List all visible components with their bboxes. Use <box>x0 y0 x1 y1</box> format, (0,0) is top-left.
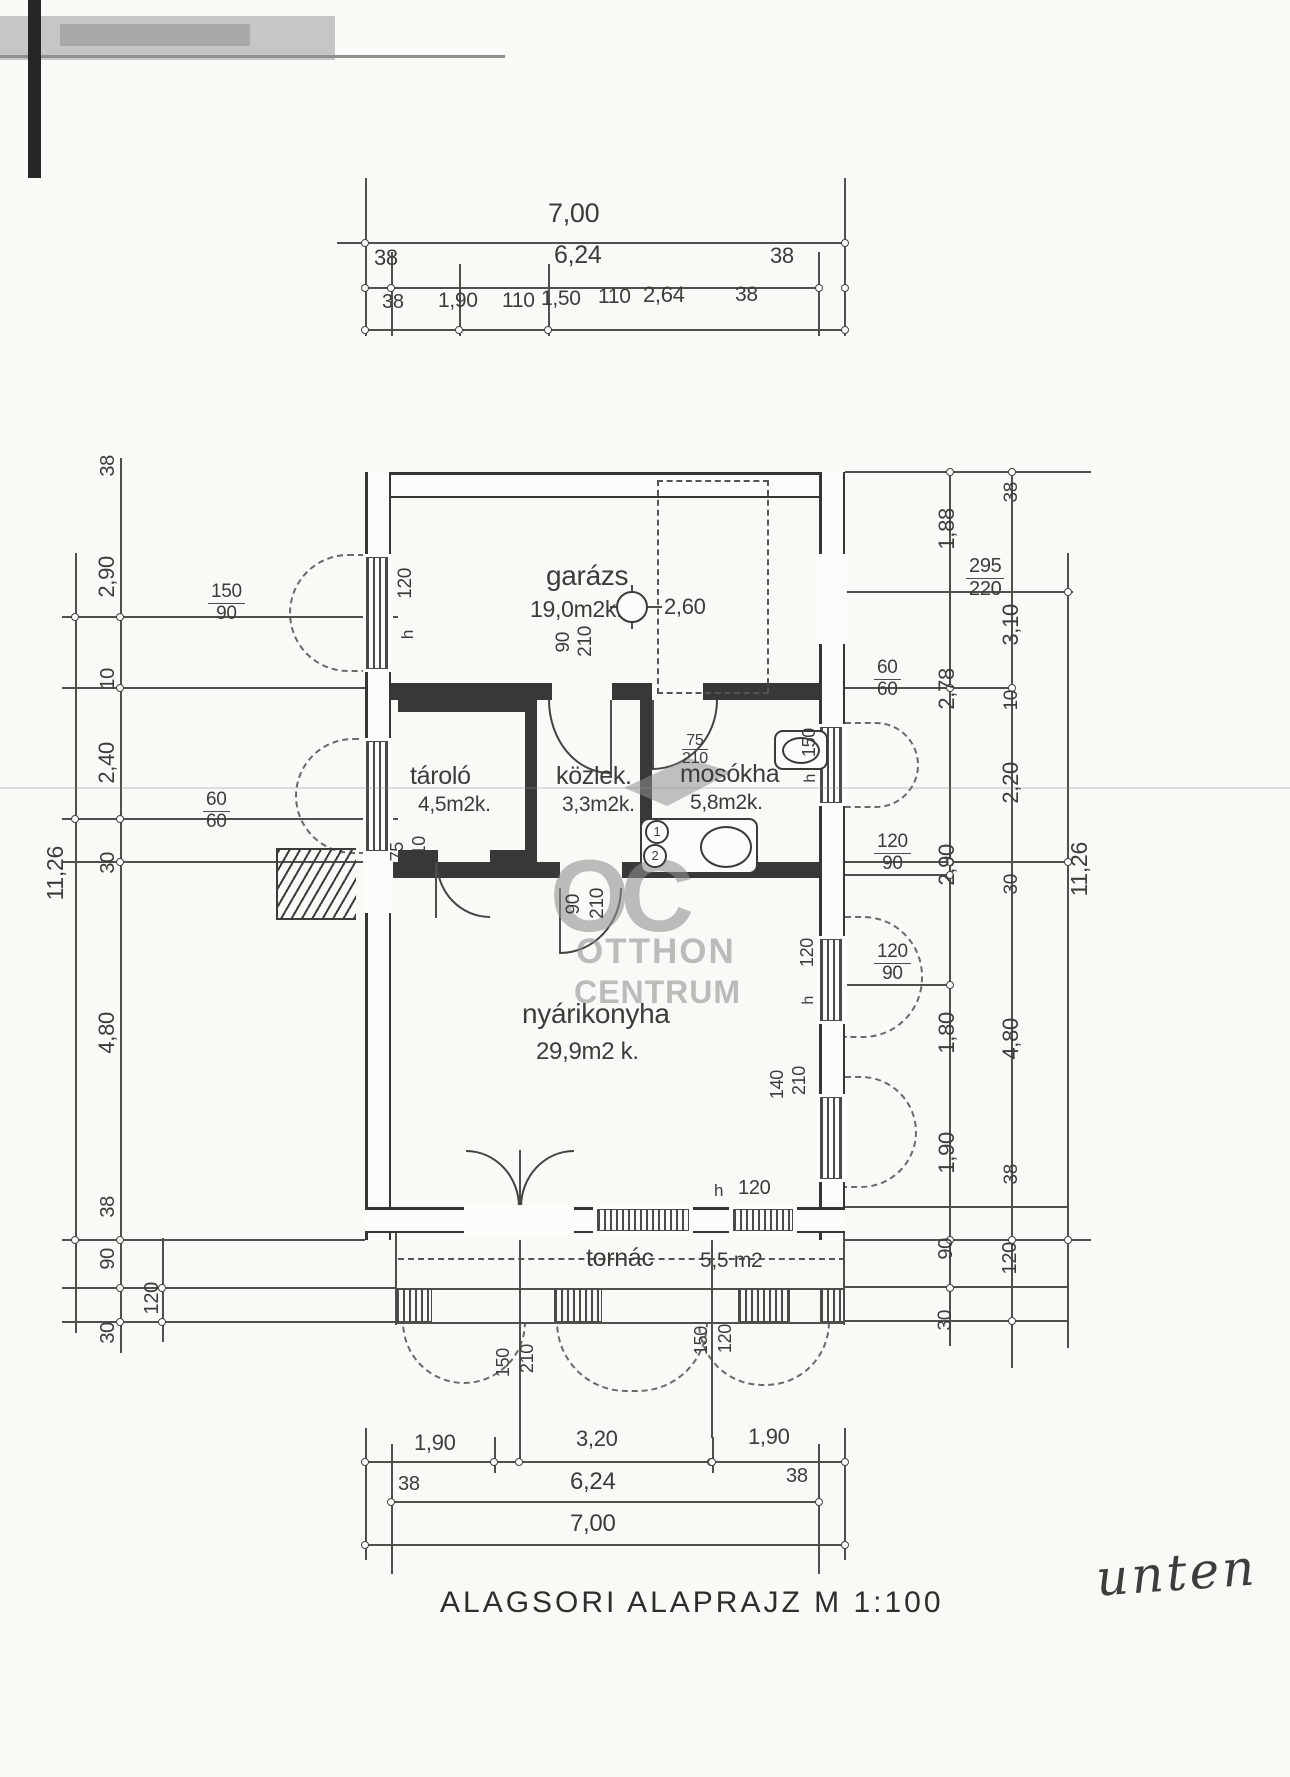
plan-line <box>845 1286 1068 1288</box>
plan-line <box>365 1461 845 1463</box>
dim-label: 30 <box>1002 874 1021 895</box>
basement-floor-plan-scan: OC OTTHON CENTRUM ALAGSORI ALAPRAJZ M 1:… <box>0 0 1290 1777</box>
plan-line <box>365 178 367 336</box>
chain-node <box>1064 1236 1072 1244</box>
plan-line <box>712 1437 714 1473</box>
plan-line <box>396 1322 845 1324</box>
window-swing-arc <box>845 1076 917 1188</box>
dim-label: 15090 <box>208 582 245 624</box>
dim-label: 1,90 <box>936 1132 958 1174</box>
watermark: OC OTTHON CENTRUM <box>0 0 1290 1777</box>
wall-opening <box>363 853 393 913</box>
dim-label: 150 <box>800 728 818 757</box>
dim-label: 3,10 <box>1000 604 1022 646</box>
window-swing-arc <box>289 554 365 672</box>
dim-label: 1,90 <box>438 290 478 311</box>
chain-node <box>815 284 823 292</box>
dim-label: 110 <box>598 286 631 307</box>
wall-opening <box>464 1205 574 1235</box>
fixture-mark-1: 1 <box>645 820 669 844</box>
chain-node <box>841 326 849 334</box>
dim-label: 2,78 <box>936 668 958 710</box>
plan-line <box>391 1501 819 1503</box>
window-hatch <box>733 1209 793 1231</box>
interior-wall <box>398 700 537 712</box>
room-area-nyarikonyha: 29,9m2 k. <box>536 1040 639 1064</box>
chain-node <box>71 613 79 621</box>
plan-line <box>818 252 820 336</box>
dim-label: 38 <box>98 1196 118 1218</box>
room-area-tornac: 5,5 m2 <box>700 1250 762 1271</box>
dim-label: 150 <box>494 1348 512 1377</box>
window-hatch <box>820 939 842 1021</box>
interior-wall <box>391 683 552 700</box>
chain-node <box>116 1236 124 1244</box>
dim-label: 120 <box>738 1178 770 1198</box>
window-hatch <box>366 741 388 851</box>
chain-node <box>946 468 954 476</box>
dim-label: 38 <box>374 247 398 269</box>
dim-label: 38 <box>770 245 794 267</box>
plan-line <box>62 1239 365 1241</box>
plan-line <box>845 1206 1068 1208</box>
dim-label: 120 <box>716 1324 734 1353</box>
dim-label: 1,90 <box>748 1426 790 1448</box>
chain-node <box>841 284 849 292</box>
dim-label: 140 <box>768 1070 786 1099</box>
scan-artifact-line <box>0 55 505 58</box>
plan-line <box>949 468 951 1346</box>
dim-label: 6,24 <box>554 243 601 268</box>
dim-label: 10 <box>98 668 118 690</box>
window-swing-arc <box>295 738 367 854</box>
chain-node <box>361 239 369 247</box>
dim-label: 30 <box>936 1310 955 1331</box>
wall-opening <box>817 554 847 644</box>
room-name-garazs: garázs <box>546 562 628 590</box>
dim-label: 38 <box>735 284 758 305</box>
plan-line <box>365 1544 845 1546</box>
dim-label: 30 <box>98 852 118 874</box>
room-area-garazs: 19,0m2k. <box>530 598 622 621</box>
dim-label: h <box>801 996 817 1005</box>
plan-line <box>1067 553 1069 1348</box>
dim-top-overall: 7,00 <box>548 200 599 227</box>
interior-wall <box>612 683 652 700</box>
chain-node <box>841 1541 849 1549</box>
dim-label: 150 <box>692 1326 710 1355</box>
plan-line <box>818 1444 820 1574</box>
dim-label: 90 <box>936 1238 956 1260</box>
door-swing-arc <box>520 1150 574 1207</box>
dim-label: 1,50 <box>541 288 581 309</box>
dim-label: 1,90 <box>414 1432 456 1454</box>
chain-node <box>1008 1317 1016 1325</box>
dim-label: 4,80 <box>96 1012 118 1054</box>
height-mark-value: 2,60 <box>664 596 706 618</box>
handwritten-note: unten <box>1094 1538 1259 1607</box>
dim-label: 90 <box>554 632 573 653</box>
dim-label: h <box>714 1182 723 1199</box>
room-area-kozlek: 3,3m2k. <box>562 794 635 815</box>
fixture <box>700 826 752 868</box>
plan-line <box>75 553 77 1333</box>
chain-node <box>815 1498 823 1506</box>
dim-label: 2,40 <box>96 742 118 784</box>
window-hatch <box>738 1288 790 1322</box>
dim-label: 2,90 <box>96 556 118 598</box>
plan-line <box>845 1239 1091 1241</box>
plan-line <box>494 1437 496 1473</box>
dim-label: 120 <box>798 938 816 967</box>
chain-node <box>515 1458 523 1466</box>
chain-node <box>361 1458 369 1466</box>
dim-label: 210 <box>518 1344 536 1373</box>
plan-line <box>62 1287 396 1289</box>
dim-label: 10 <box>1002 690 1021 711</box>
dim-label: 295220 <box>966 556 1004 600</box>
dim-label: 110 <box>502 290 535 311</box>
dim-label: 120 <box>396 568 415 599</box>
door-swing-arc <box>436 862 490 918</box>
chain-node <box>71 1236 79 1244</box>
chain-node <box>71 815 79 823</box>
dim-label: 1,88 <box>936 508 958 550</box>
chain-node <box>361 1541 369 1549</box>
interior-wall <box>490 850 537 862</box>
dim-label: 6,24 <box>570 1470 616 1494</box>
fixture-mark-2: 2 <box>643 844 667 868</box>
chain-node <box>946 981 954 989</box>
window-swing-arc <box>845 722 919 808</box>
dim-label: 75210 <box>682 732 708 768</box>
plan-line <box>844 178 846 336</box>
dashed-outline <box>657 480 769 694</box>
room-area-tarolo: 4,5m2k. <box>418 794 491 815</box>
dim-left-overall: 11,26 <box>44 846 67 900</box>
chain-node <box>841 239 849 247</box>
chain-node <box>361 326 369 334</box>
door-swing-arc <box>466 1150 520 1207</box>
plan-line <box>648 606 662 608</box>
dim-label: 210 <box>588 888 607 919</box>
dim-bottom-overall: 7,00 <box>570 1512 616 1536</box>
dim-label: h <box>803 774 819 783</box>
plan-line <box>845 984 951 986</box>
room-name-tarolo: tároló <box>410 764 471 789</box>
plan-line <box>845 471 1091 473</box>
chain-node <box>708 1458 716 1466</box>
dim-label: 38 <box>98 455 118 477</box>
chain-node <box>455 326 463 334</box>
scan-artifact-smudge <box>60 24 250 46</box>
window-hatch <box>597 1209 689 1231</box>
stairs-hatch <box>276 848 356 920</box>
chain-node <box>387 1498 395 1506</box>
plan-line <box>62 818 398 820</box>
dim-label: 2,64 <box>643 284 685 306</box>
dim-label: 38 <box>382 292 404 312</box>
dim-label: 38 <box>398 1474 420 1494</box>
dim-label: 210 <box>410 836 428 865</box>
chain-node <box>544 326 552 334</box>
window-hatch <box>366 557 388 669</box>
room-name-kozlek: közlek. <box>556 764 632 789</box>
dim-label: h <box>399 630 416 639</box>
chain-node <box>116 1284 124 1292</box>
dim-label: 120 <box>142 1282 162 1314</box>
outer-wall <box>365 472 845 498</box>
dim-right-overall: 11,26 <box>1068 842 1091 896</box>
chain-node <box>1008 468 1016 476</box>
interior-wall <box>525 700 537 862</box>
dim-label: 12090 <box>874 832 911 874</box>
chain-node <box>1064 588 1072 596</box>
dim-label: 30 <box>98 1322 118 1344</box>
room-name-nyarikonyha: nyárikonyha <box>522 1000 670 1028</box>
dim-label: 6060 <box>203 790 230 832</box>
dim-label: 38 <box>786 1466 808 1486</box>
window-hatch <box>820 1097 842 1179</box>
plan-line <box>845 1320 1068 1322</box>
dim-label: 2,90 <box>936 844 958 886</box>
window-hatch <box>554 1288 602 1322</box>
porch-arc <box>556 1322 708 1392</box>
plan-line <box>391 1444 393 1574</box>
dim-label: 4,80 <box>1000 1018 1022 1060</box>
chain-node <box>361 284 369 292</box>
dim-label: 38 <box>1002 1164 1021 1185</box>
dim-label: 3,20 <box>576 1428 618 1450</box>
dim-label: 120 <box>1000 1242 1020 1274</box>
room-name-tornac: tornác <box>586 1246 654 1271</box>
chain-node <box>946 1284 954 1292</box>
dim-label: 2,20 <box>1000 762 1022 804</box>
dim-label: 75 <box>388 842 406 861</box>
dim-label: 210 <box>790 1066 808 1095</box>
plan-line <box>120 458 122 1353</box>
room-area-mosokha: 5,8m2k. <box>690 792 763 813</box>
chain-node <box>116 815 124 823</box>
dim-label: 210 <box>576 626 595 657</box>
dim-label: 6060 <box>874 658 901 700</box>
chain-node <box>490 1458 498 1466</box>
chain-node <box>116 613 124 621</box>
chain-node <box>841 1458 849 1466</box>
window-hatch <box>820 1288 845 1322</box>
chain-node <box>158 1318 166 1326</box>
plan-line <box>845 687 1012 689</box>
dim-label: 90 <box>98 1248 118 1270</box>
dim-label: 38 <box>1002 482 1021 503</box>
dim-label: 90 <box>564 894 583 915</box>
dim-label: 12090 <box>874 942 911 984</box>
plan-caption: ALAGSORI ALAPRAJZ M 1:100 <box>440 1586 944 1620</box>
plan-line <box>365 329 845 331</box>
plan-line <box>845 591 1073 593</box>
window-hatch <box>396 1288 432 1322</box>
scan-artifact-edge <box>28 0 41 178</box>
dim-label: 1,80 <box>936 1012 958 1054</box>
